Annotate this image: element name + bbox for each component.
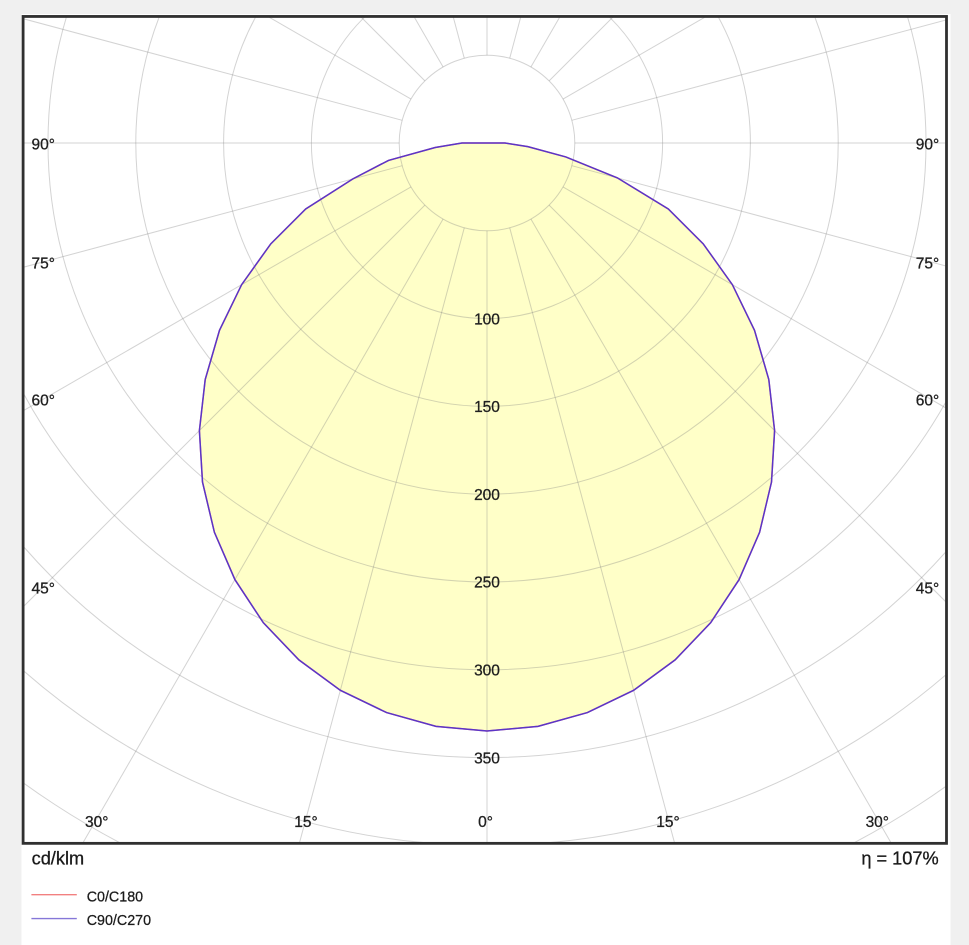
svg-text:C0/C180: C0/C180 <box>87 889 143 905</box>
svg-text:15°: 15° <box>656 814 679 831</box>
svg-text:250: 250 <box>474 575 500 592</box>
svg-text:0°: 0° <box>478 814 493 831</box>
svg-text:η = 107%: η = 107% <box>861 849 938 869</box>
svg-text:45°: 45° <box>916 580 939 597</box>
svg-text:60°: 60° <box>916 393 939 410</box>
svg-text:30°: 30° <box>866 814 889 831</box>
svg-text:100: 100 <box>474 311 500 328</box>
svg-text:75°: 75° <box>916 255 939 272</box>
svg-text:300: 300 <box>474 663 500 680</box>
svg-text:350: 350 <box>474 750 500 767</box>
svg-text:75°: 75° <box>31 255 54 272</box>
svg-text:C90/C270: C90/C270 <box>87 913 151 929</box>
svg-text:60°: 60° <box>31 393 54 410</box>
svg-text:200: 200 <box>474 487 500 504</box>
svg-text:15°: 15° <box>294 814 317 831</box>
svg-text:45°: 45° <box>31 580 54 597</box>
svg-text:cd/klm: cd/klm <box>32 849 85 869</box>
svg-text:90°: 90° <box>916 136 939 153</box>
svg-text:150: 150 <box>474 399 500 416</box>
svg-text:30°: 30° <box>85 814 108 831</box>
svg-text:90°: 90° <box>31 136 54 153</box>
